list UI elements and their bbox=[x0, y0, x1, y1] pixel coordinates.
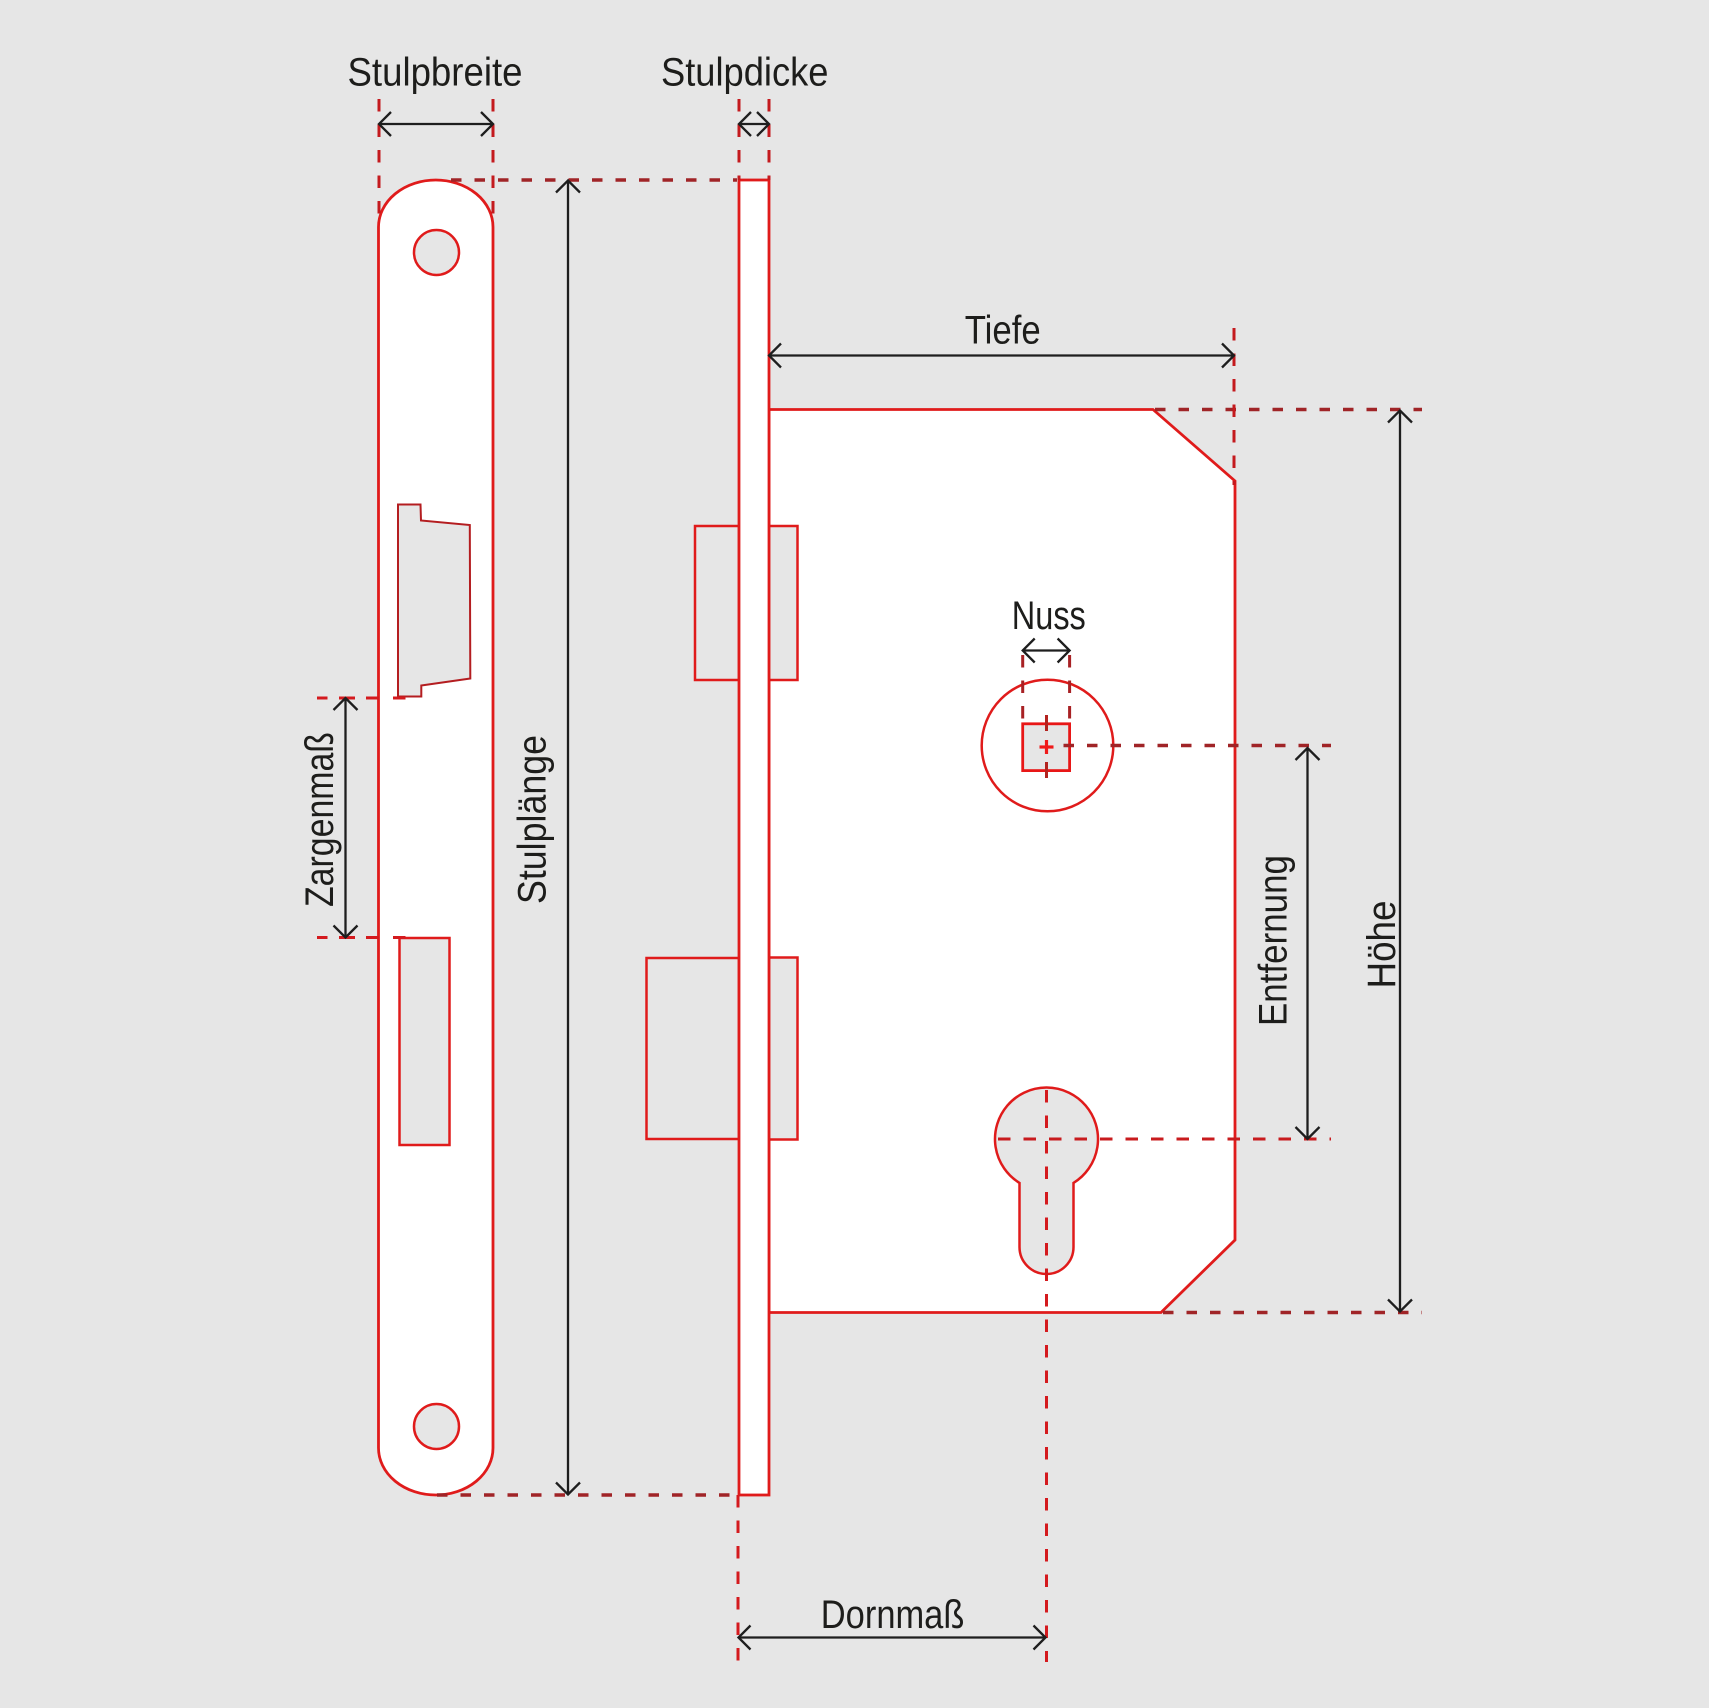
svg-text:Stulpdicke: Stulpdicke bbox=[661, 50, 829, 94]
svg-text:Höhe: Höhe bbox=[1360, 901, 1404, 989]
svg-text:Stulplänge: Stulplänge bbox=[511, 735, 555, 904]
svg-text:Dornmaß: Dornmaß bbox=[821, 1593, 965, 1637]
svg-text:Tiefe: Tiefe bbox=[965, 309, 1041, 353]
svg-text:Zargenmaß: Zargenmaß bbox=[298, 732, 342, 907]
svg-text:Nuss: Nuss bbox=[1012, 594, 1086, 638]
svg-text:Entfernung: Entfernung bbox=[1252, 855, 1296, 1026]
svg-text:Stulpbreite: Stulpbreite bbox=[348, 50, 523, 94]
